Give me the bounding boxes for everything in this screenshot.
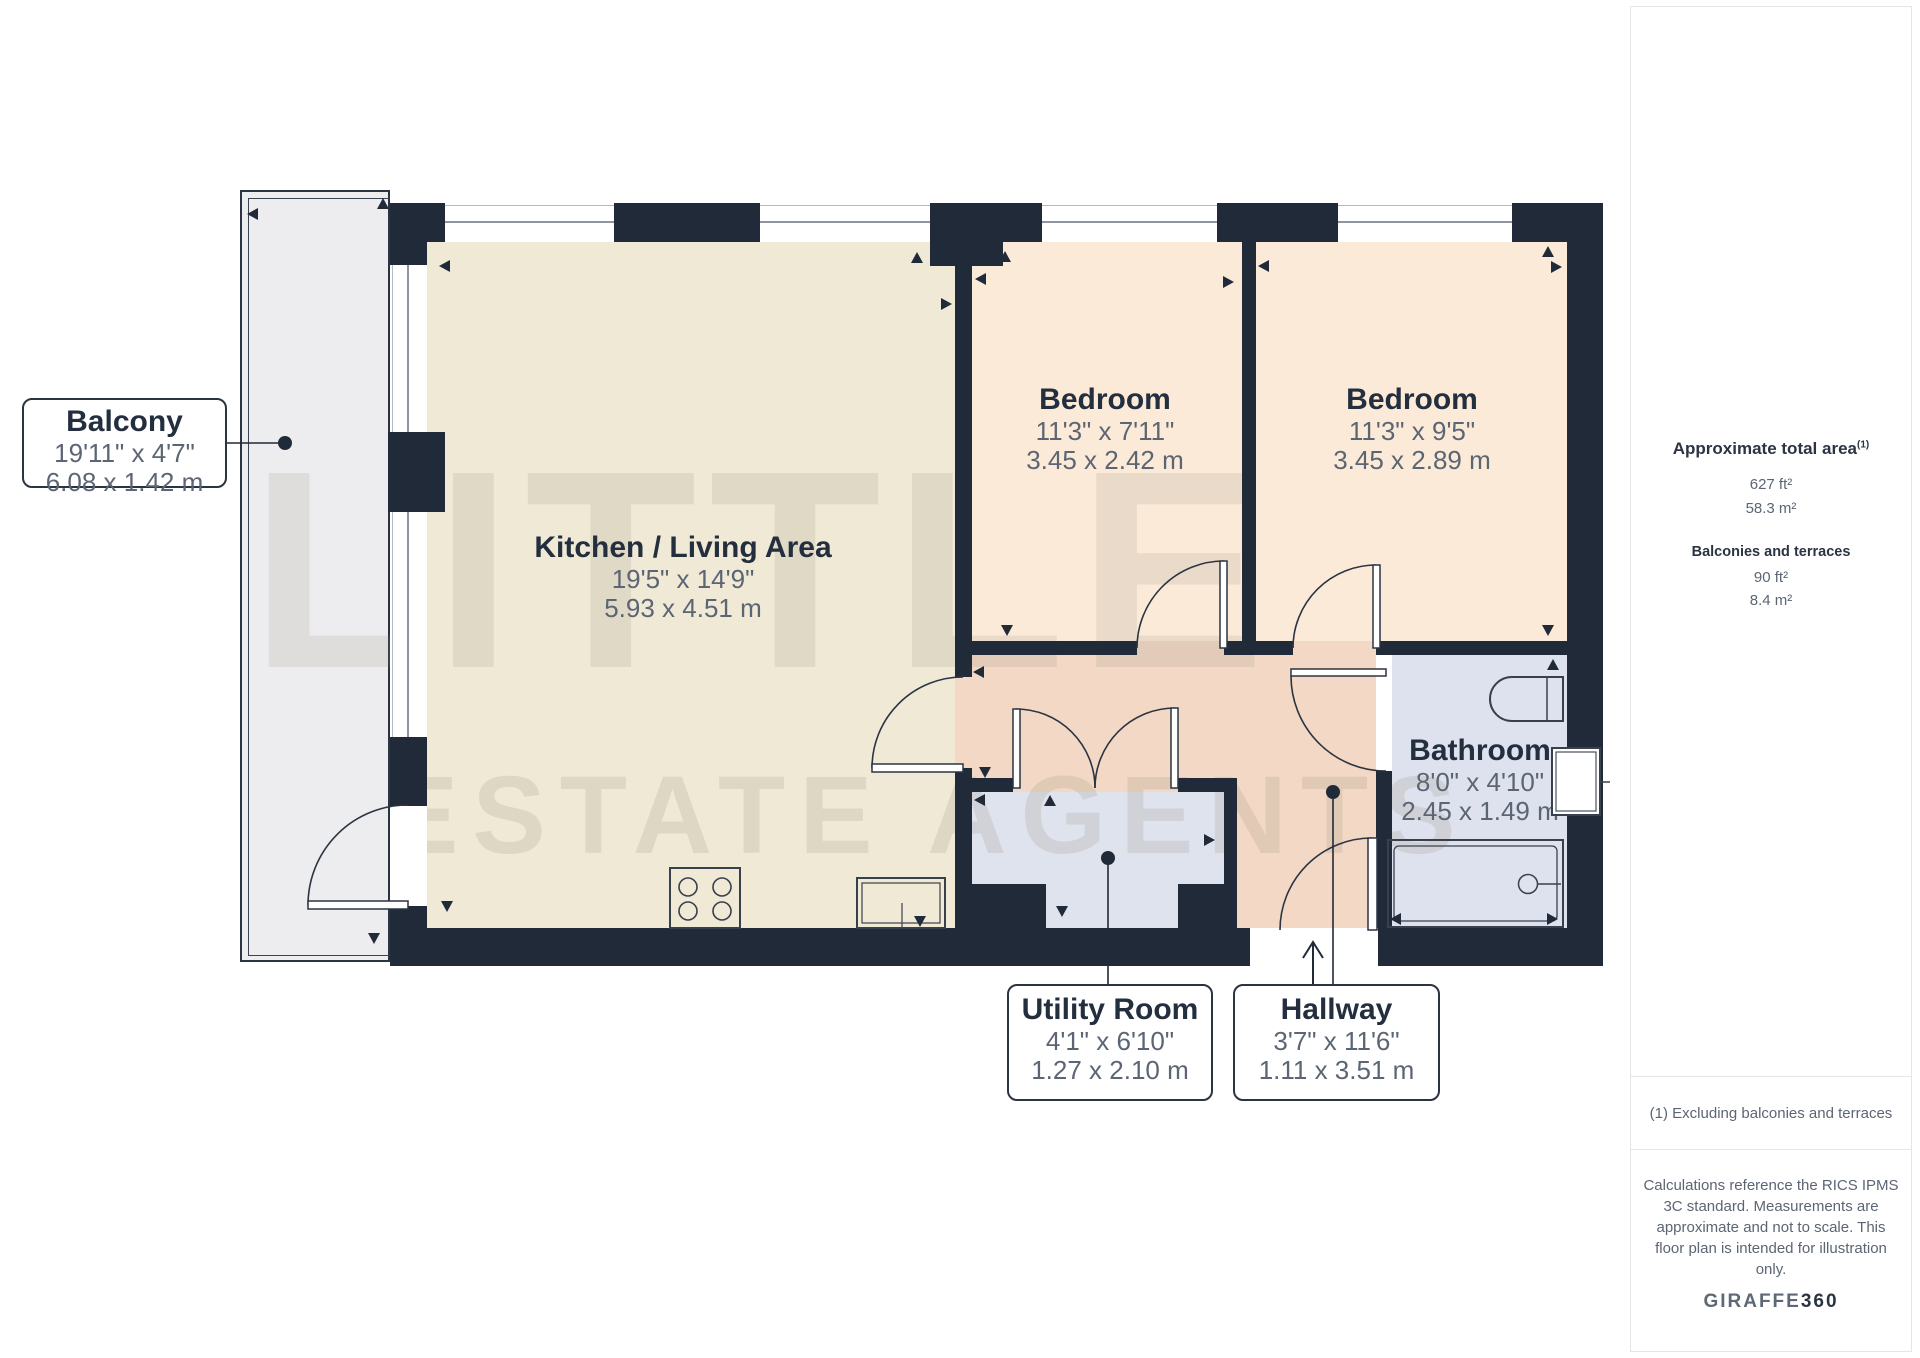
floor-plan-page: LITTLE ESTATE AGENTS bbox=[0, 0, 1920, 1358]
logo-brand-name: GIRAFFE bbox=[1703, 1291, 1800, 1312]
window-kitchen-2 bbox=[760, 203, 930, 242]
logo-brand-suffix: 360 bbox=[1801, 1291, 1839, 1312]
utility-callout: Utility Room 4'1" x 6'10" 1.27 x 2.10 m bbox=[1007, 984, 1213, 1101]
wall-utility-block-sw bbox=[972, 884, 1046, 928]
giraffe360-logo: GIRAFFE360 bbox=[1631, 1291, 1911, 1313]
room-title: Bedroom bbox=[1272, 383, 1552, 417]
wall-utility-north-a bbox=[972, 778, 1013, 792]
disclaimer-line: Calculations reference the RICS IPMS bbox=[1631, 1175, 1911, 1196]
utility-floor bbox=[972, 792, 1224, 884]
wall-kitchen-lower bbox=[955, 768, 972, 928]
room-dim-metric: 5.93 x 4.51 m bbox=[503, 594, 863, 623]
room-title: Kitchen / Living Area bbox=[503, 531, 863, 565]
wall-utility-north-b bbox=[1178, 778, 1237, 792]
room-dim-metric: 6.08 x 1.42 m bbox=[24, 468, 225, 497]
balcony-door-opening bbox=[390, 806, 427, 906]
room-dim-metric: 2.45 x 1.49 m bbox=[1355, 797, 1605, 826]
room-dim-imperial: 4'1" x 6'10" bbox=[1009, 1027, 1211, 1056]
room-dim-imperial: 19'5" x 14'9" bbox=[503, 565, 863, 594]
bedroom1-door-threshold bbox=[1137, 641, 1224, 655]
hallway-floor bbox=[972, 655, 1376, 778]
sidebar-divider bbox=[1631, 1149, 1911, 1150]
room-title: Bedroom bbox=[965, 383, 1245, 417]
balcony-callout: Balcony 19'11" x 4'7" 6.08 x 1.42 m bbox=[22, 398, 227, 488]
wall-bottom bbox=[390, 928, 1603, 966]
window-bedroom1 bbox=[1042, 203, 1217, 242]
room-dim-metric: 1.11 x 3.51 m bbox=[1235, 1056, 1438, 1085]
room-dim-imperial: 11'3" x 9'5" bbox=[1272, 417, 1552, 446]
balcony-inner-rail bbox=[248, 198, 390, 956]
room-dim-metric: 3.45 x 2.42 m bbox=[965, 446, 1245, 475]
utility-floor-stem bbox=[1046, 884, 1178, 928]
balconies-m: 8.4 m² bbox=[1631, 592, 1911, 609]
balconies-heading: Balconies and terraces bbox=[1631, 544, 1911, 560]
disclaimer-line: only. bbox=[1631, 1259, 1911, 1280]
bathroom-label: Bathroom 8'0" x 4'10" 2.45 x 1.49 m bbox=[1355, 734, 1605, 826]
wall-right bbox=[1567, 203, 1603, 966]
info-sidebar: Approximate total area(1) 627 ft² 58.3 m… bbox=[1630, 6, 1912, 1352]
kitchen-label: Kitchen / Living Area 19'5" x 14'9" 5.93… bbox=[503, 531, 863, 623]
entry-door-opening bbox=[1250, 928, 1378, 966]
hallway-door-threshold bbox=[1013, 778, 1178, 792]
wall-bedrooms-south-a bbox=[955, 641, 1137, 655]
wall-kitchen-column bbox=[930, 242, 1003, 266]
window-balcony-2 bbox=[390, 512, 427, 737]
room-dim-imperial: 11'3" x 7'11" bbox=[965, 417, 1245, 446]
total-area-ft: 627 ft² bbox=[1631, 476, 1911, 493]
bedroom1-label: Bedroom 11'3" x 7'11" 3.45 x 2.42 m bbox=[965, 383, 1245, 475]
total-area-label: Approximate total area bbox=[1673, 439, 1857, 458]
disclaimer-line: floor plan is intended for illustration bbox=[1631, 1238, 1911, 1259]
room-dim-imperial: 19'11" x 4'7" bbox=[24, 439, 225, 468]
room-title: Hallway bbox=[1235, 993, 1438, 1027]
room-dim-imperial: 8'0" x 4'10" bbox=[1355, 768, 1605, 797]
room-title: Balcony bbox=[24, 405, 225, 439]
total-area-m: 58.3 m² bbox=[1631, 500, 1911, 517]
room-title: Utility Room bbox=[1009, 993, 1211, 1027]
room-dim-metric: 1.27 x 2.10 m bbox=[1009, 1056, 1211, 1085]
bedroom2-label: Bedroom 11'3" x 9'5" 3.45 x 2.89 m bbox=[1272, 383, 1552, 475]
window-bedroom2 bbox=[1338, 203, 1512, 242]
bedroom2-door-threshold bbox=[1293, 641, 1376, 655]
disclaimer-line: 3C standard. Measurements are bbox=[1631, 1196, 1911, 1217]
disclaimer-line: approximate and not to scale. This bbox=[1631, 1217, 1911, 1238]
window-kitchen-1 bbox=[445, 203, 614, 242]
room-dim-metric: 3.45 x 2.89 m bbox=[1272, 446, 1552, 475]
disclaimer: Calculations reference the RICS IPMS 3C … bbox=[1631, 1175, 1911, 1280]
sidebar-divider bbox=[1631, 1076, 1911, 1077]
wall-left-block bbox=[388, 432, 445, 512]
footnote: (1) Excluding balconies and terraces bbox=[1631, 1105, 1911, 1122]
balconies-ft: 90 ft² bbox=[1631, 569, 1911, 586]
wall-bedrooms-south-c bbox=[1376, 641, 1567, 655]
hallway-callout: Hallway 3'7" x 11'6" 1.11 x 3.51 m bbox=[1233, 984, 1440, 1101]
room-title: Bathroom bbox=[1355, 734, 1605, 768]
total-area-superscript: (1) bbox=[1857, 439, 1869, 450]
wall-bedrooms-south-b bbox=[1224, 641, 1293, 655]
wall-utility-block-se bbox=[1178, 884, 1237, 928]
window-balcony-1 bbox=[390, 265, 427, 432]
room-dim-imperial: 3'7" x 11'6" bbox=[1235, 1027, 1438, 1056]
total-area-heading: Approximate total area(1) bbox=[1631, 439, 1911, 459]
kitchen-door-threshold bbox=[955, 677, 972, 768]
